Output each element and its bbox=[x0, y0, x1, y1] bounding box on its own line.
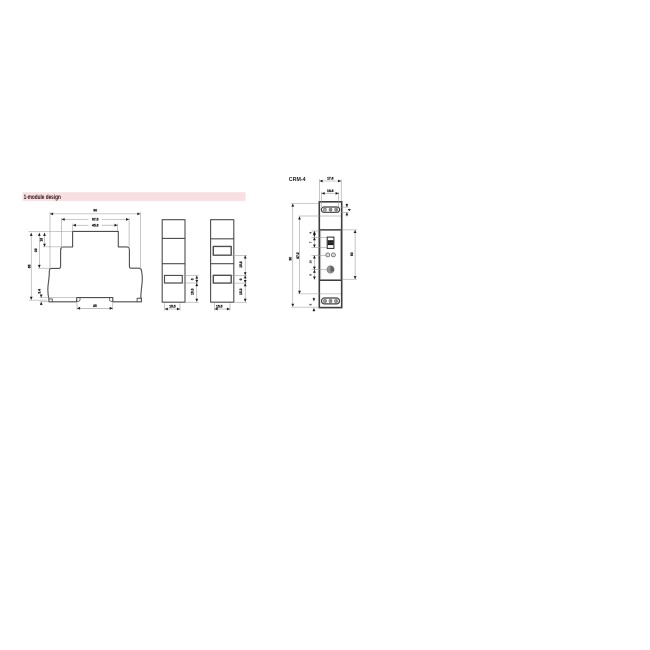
svg-text:CRM-4: CRM-4 bbox=[289, 177, 306, 183]
svg-text:15.5: 15.5 bbox=[169, 304, 176, 308]
svg-text:36: 36 bbox=[34, 248, 38, 252]
svg-text:17.6: 17.6 bbox=[327, 176, 334, 180]
svg-text:45.3: 45.3 bbox=[92, 224, 99, 228]
svg-text:35: 35 bbox=[93, 304, 97, 308]
svg-text:6: 6 bbox=[239, 278, 243, 280]
svg-text:10: 10 bbox=[309, 260, 313, 264]
svg-text:15.8: 15.8 bbox=[239, 261, 243, 268]
svg-text:60: 60 bbox=[350, 252, 354, 256]
svg-text:67.5: 67.5 bbox=[92, 218, 99, 222]
svg-text:65: 65 bbox=[28, 264, 32, 268]
svg-text:4: 4 bbox=[348, 209, 352, 211]
svg-text:15.3: 15.3 bbox=[239, 288, 243, 295]
svg-text:1-module design: 1-module design bbox=[24, 195, 62, 202]
svg-text:15.5: 15.5 bbox=[216, 304, 223, 308]
svg-text:90: 90 bbox=[93, 209, 97, 213]
svg-text:15.3: 15.3 bbox=[190, 288, 194, 295]
svg-text:87.5: 87.5 bbox=[296, 252, 300, 259]
svg-text:16: 16 bbox=[40, 238, 44, 242]
svg-text:90: 90 bbox=[289, 257, 293, 261]
svg-text:6: 6 bbox=[190, 278, 194, 280]
svg-text:3.4: 3.4 bbox=[38, 289, 42, 294]
svg-text:16.8: 16.8 bbox=[327, 189, 334, 193]
